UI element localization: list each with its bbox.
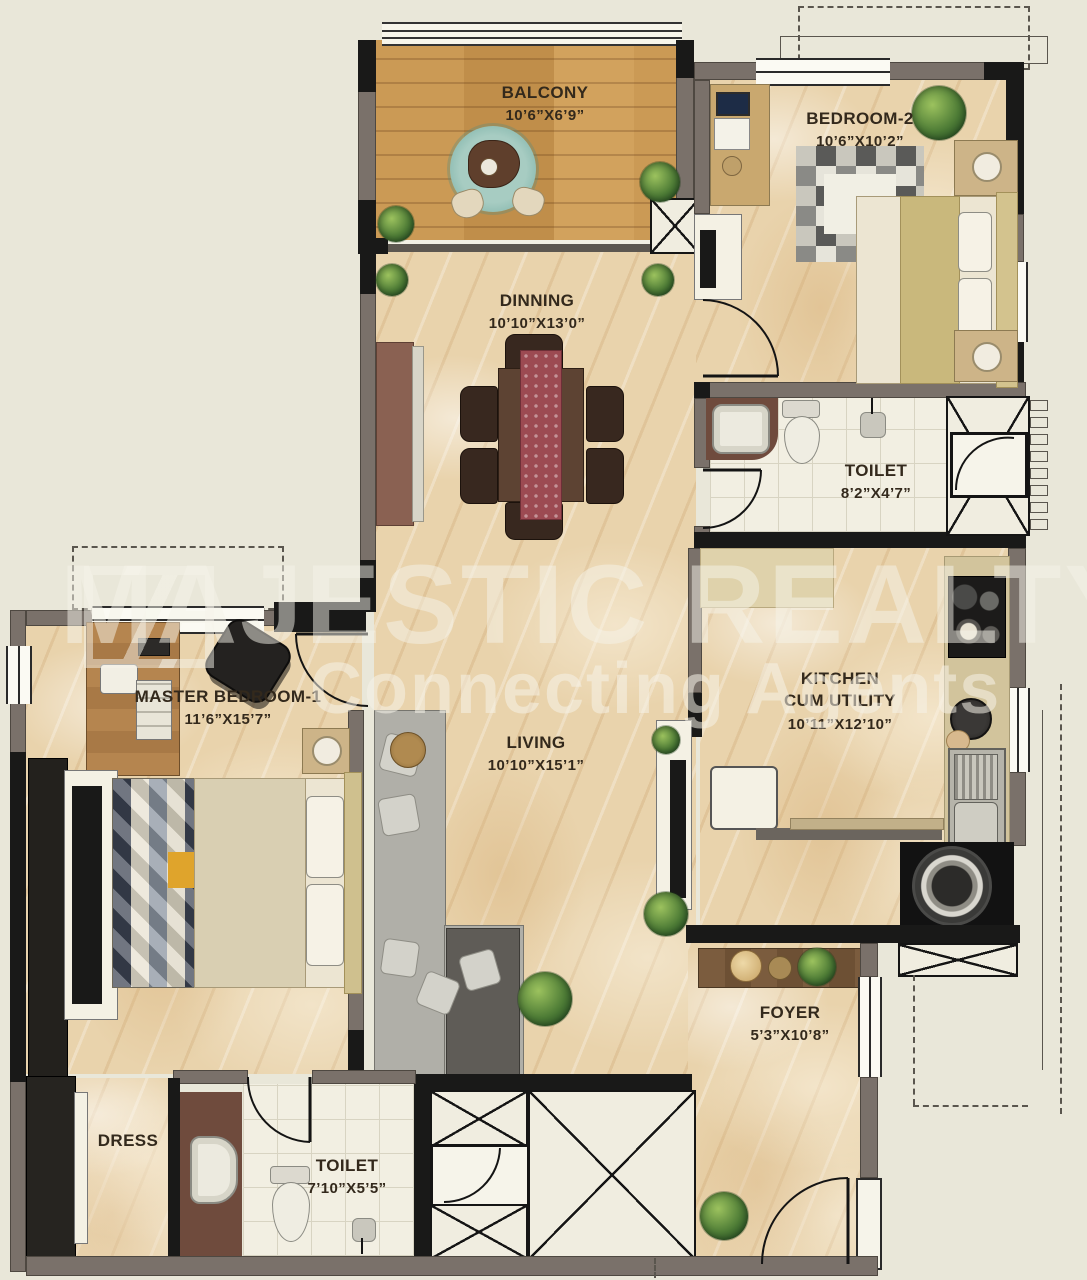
room-label-toilet-bottom: TOILET7’10”X5’5” [307,1155,386,1200]
shaft-access-door [950,432,1028,498]
exterior-line [1042,710,1043,1070]
master-headboard [344,772,362,994]
exterior-rungs [1030,417,1048,428]
wall [694,382,710,398]
toilet-top-sink [712,404,770,454]
wall [10,752,26,1082]
exterior-dashed-line [913,975,915,1105]
wall [168,1078,180,1258]
exterior-rungs [1030,519,1048,530]
dining-chair [586,448,624,504]
wall [860,943,878,977]
plant [652,726,680,754]
plant [640,162,680,202]
room-label-toilet-top: TOILET8’2”X4’7” [841,460,911,505]
plant [700,1192,748,1240]
wall [676,40,694,78]
watermark-logo [84,566,214,668]
dining-table-runner [520,350,562,520]
wall [418,1074,692,1090]
room-label-living: LIVING10’10”X15’1” [488,732,585,777]
master-bed-duvet [194,778,306,988]
duct-shaft [650,198,700,254]
wall [860,1077,878,1178]
bedroom2-pillow [958,278,992,338]
living-pouf [390,732,426,768]
exterior-rungs [1030,434,1048,445]
kitchen-fridge [710,766,778,830]
kitchen-counter-top [700,548,834,608]
kitchen-sink-drainboard [954,754,998,800]
room-label-dress: DRESS [98,1130,159,1152]
bedroom2-window [756,58,890,86]
exterior-rungs [1030,400,1048,411]
master-pillow [306,884,344,966]
master-side-window [6,646,32,704]
sofa-pillow [377,793,421,837]
bedroom2-desk-stool [722,156,742,176]
dining-sideboard-front [412,346,424,522]
toilet-bottom-shower [352,1218,376,1242]
floor-plan: BALCONY10’6”X6’9” BEDROOM-210’6”X10’2” D… [0,0,1087,1280]
balcony-sliding-door [388,240,676,252]
plant [376,264,408,296]
master-rug-accent-yellow [168,852,194,888]
dining-chair [460,386,498,442]
bedroom2-desk-monitor [716,92,750,116]
wall [312,1070,416,1084]
master-lamp [312,736,342,766]
room-label-foyer: FOYER5’3”X10’8” [750,1002,829,1047]
utility-shelf-wood [790,818,944,830]
balcony-railing [382,22,682,46]
wall [173,1070,248,1084]
wall [694,80,710,214]
foyer-pendant-light [730,950,762,982]
sofa-pillow [380,938,421,979]
dining-chair [460,448,498,504]
exterior-rungs [1030,468,1048,479]
wall [274,602,366,632]
wall [360,252,376,294]
exterior-rungs [1030,502,1048,513]
plant [798,948,836,986]
exterior-dashed-line [654,1258,656,1278]
master-tv [72,786,102,1004]
bedroom2-lamp [972,152,1002,182]
kitchen-hob [948,576,1006,658]
plant [642,264,674,296]
wall [686,925,1020,943]
exterior-rungs [1030,451,1048,462]
room-label-master-bedroom: MASTER BEDROOM-111’6”X15’7” [135,686,322,731]
living-tv [670,760,686,898]
exterior-dashed-line [913,1105,1028,1107]
plant [518,972,572,1026]
toilet-top-shower [860,412,886,438]
plant [644,892,688,936]
wall [358,200,376,254]
bedroom2-bed-runner [900,196,960,384]
wall [358,40,376,92]
wall [26,1256,878,1276]
shaft-access-door [430,1144,530,1210]
duct-shaft [430,1204,528,1260]
room-label-dinning: DINNING10’10”X13’0” [489,290,586,335]
room-label-kitchen: KITCHENCUM UTILITY10’11”X12’10” [784,668,896,735]
foyer-window [858,977,882,1077]
room-label-bedroom2: BEDROOM-210’6”X10’2” [806,108,914,153]
plant [912,86,966,140]
toilet-bottom-sink [190,1136,238,1204]
master-pillow [306,796,344,878]
master-desk-laptop [100,664,138,694]
bedroom2-lamp [972,342,1002,372]
exterior-dashed-line [1060,684,1062,1114]
lift-shaft [528,1090,696,1260]
dress-shelf [74,1092,88,1244]
duct-shaft [430,1090,528,1148]
plant [378,206,414,242]
dining-chair [586,386,624,442]
dress-wardrobe [26,1076,76,1260]
room-label-balcony: BALCONY10’6”X6’9” [502,82,589,127]
balcony-table-clock [480,158,498,176]
wall [376,238,388,254]
bedroom2-desk-papers [714,118,750,150]
wall [1008,772,1026,846]
dining-sideboard [376,342,414,526]
exterior-rungs [1030,485,1048,496]
duct-shaft [898,943,1018,977]
wall [360,252,376,612]
bedroom2-tv-panel [700,230,716,288]
foyer-decor [768,956,792,980]
wall [1008,548,1026,688]
bedroom2-pillow [958,212,992,272]
washing-machine [912,846,992,926]
